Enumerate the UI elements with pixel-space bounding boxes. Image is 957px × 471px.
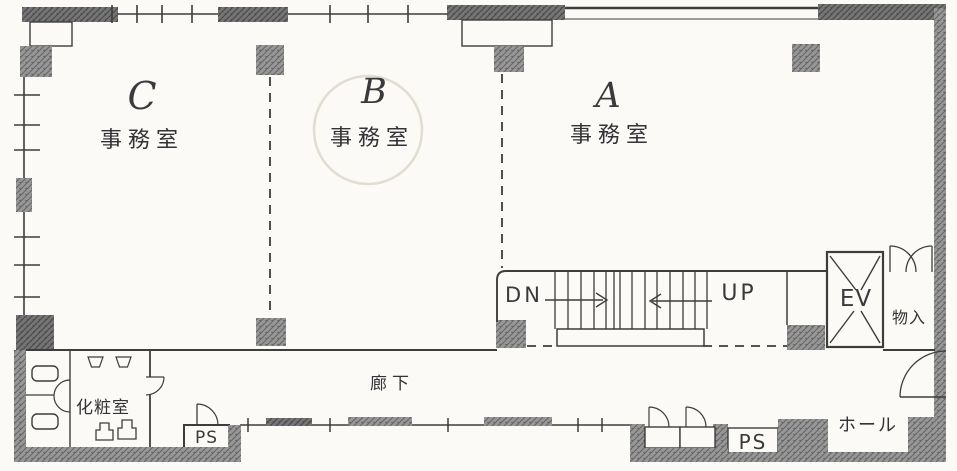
door-swing xyxy=(197,404,218,425)
column xyxy=(792,44,820,72)
door-panel xyxy=(645,427,680,448)
urinal-fixture xyxy=(118,420,136,439)
storage-label: 物入 xyxy=(879,310,939,327)
left-wall-segment xyxy=(16,178,32,212)
stairs-down-label: DN xyxy=(494,284,554,306)
top-wall xyxy=(22,4,946,46)
elevator-label: EV xyxy=(826,287,886,311)
wall-panel xyxy=(348,417,412,426)
top-left-alcove xyxy=(30,22,72,46)
toilet-fixture xyxy=(32,414,58,429)
top-center-alcove xyxy=(462,20,552,46)
office-b-letter: B xyxy=(339,74,409,111)
floor-plan-linework xyxy=(0,0,957,471)
top-wall-segment xyxy=(22,7,118,22)
column xyxy=(494,46,524,72)
stair-landing xyxy=(557,329,704,346)
wall-panel xyxy=(266,418,312,426)
restroom-label: 化粧室 xyxy=(63,400,143,418)
bottom-wall-center xyxy=(630,448,728,462)
left-wall xyxy=(14,46,54,462)
sink-fixture xyxy=(88,357,103,367)
door-swing xyxy=(146,377,164,395)
bottom-wall-left xyxy=(14,447,240,462)
stairs-up-label: UP xyxy=(709,282,769,305)
pipe-space-left-label: PS xyxy=(184,430,229,448)
column xyxy=(496,320,526,348)
column xyxy=(256,45,284,75)
column xyxy=(256,318,286,346)
storage-door-swing xyxy=(890,246,916,272)
door-panel xyxy=(680,427,715,448)
storage-room xyxy=(883,246,935,350)
corridor-label: 廊下 xyxy=(352,376,432,394)
hall-label: ホール xyxy=(820,417,916,436)
pipe-space-right-label: PS xyxy=(728,432,778,453)
top-wall-segment xyxy=(818,4,946,20)
floor-plan-canvas: C 事務室 B 事務室 A 事務室 DN UP EV 物入 化粧室 廊下 ホール… xyxy=(0,0,957,471)
right-wall xyxy=(934,8,946,458)
office-c-label: 事務室 xyxy=(77,129,207,152)
top-wall-segment xyxy=(447,5,565,20)
wall-panel xyxy=(484,417,552,426)
left-wall-lower xyxy=(14,350,26,462)
corner-column xyxy=(16,315,54,351)
sink-fixture xyxy=(116,357,131,367)
door-swing xyxy=(686,407,706,427)
bottom-wall-endcap xyxy=(228,425,241,462)
office-a-letter: A xyxy=(573,78,643,115)
bottom-alcove xyxy=(630,407,728,454)
toilet-fixture xyxy=(32,366,58,381)
column xyxy=(20,46,52,77)
corridor-window-wall xyxy=(240,417,635,432)
top-wall-segment xyxy=(218,7,288,22)
storage-door-swing xyxy=(906,246,932,272)
column xyxy=(787,325,825,350)
staircase xyxy=(497,271,827,346)
office-a-label: 事務室 xyxy=(547,124,677,147)
office-c-letter: C xyxy=(107,77,177,117)
door-swing xyxy=(649,407,669,427)
urinal-fixture xyxy=(96,423,113,440)
office-b-label: 事務室 xyxy=(307,127,437,150)
